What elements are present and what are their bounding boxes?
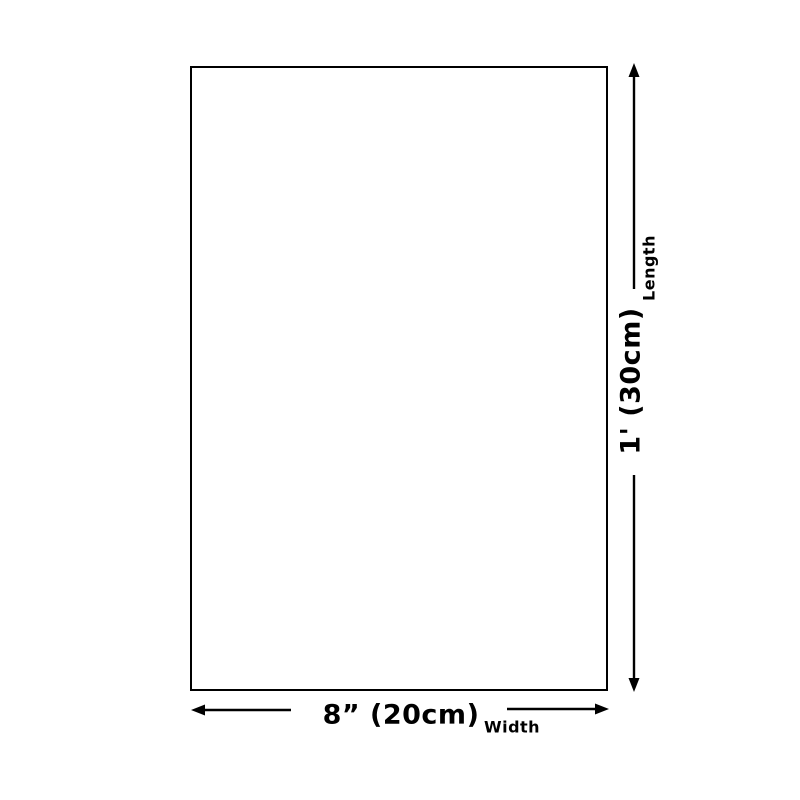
- arrow-down-icon: [627, 475, 641, 692]
- dimension-diagram: 8” (20cm) Width 1' (30cm) Length: [0, 0, 800, 800]
- length-axis-label: Length: [640, 235, 659, 301]
- arrow-left-icon: [191, 703, 291, 717]
- arrow-right-icon: [507, 702, 609, 716]
- product-outline-rectangle: [190, 66, 608, 691]
- width-axis-label: Width: [484, 718, 540, 737]
- width-dimension-value: 8” (20cm): [323, 700, 480, 731]
- length-dimension-value: 1' (30cm): [616, 307, 647, 454]
